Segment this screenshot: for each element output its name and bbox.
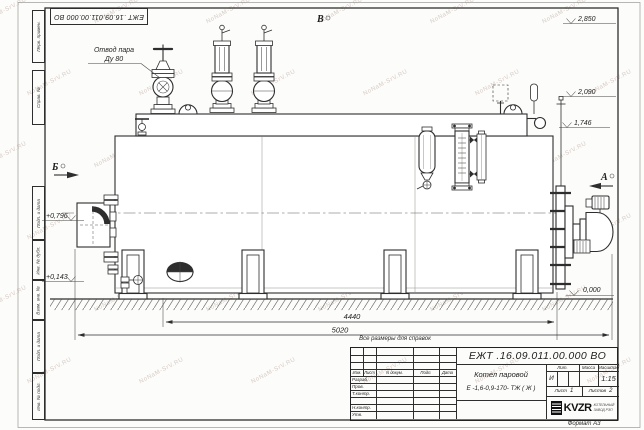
row-utv: Утв.	[352, 411, 376, 418]
svg-text:В: В	[316, 14, 324, 25]
svg-text:2,090: 2,090	[577, 89, 596, 96]
support-leg	[239, 250, 267, 299]
support-leg	[119, 250, 147, 299]
product-name: Котел паровой	[456, 366, 546, 382]
elevation-0143: +0,143	[42, 274, 84, 282]
view-label-a: А	[589, 172, 614, 189]
steam-outlet-callout: Отвод пара Ду 80	[88, 46, 160, 78]
frame-column-inv-podl: Инв. № подл.	[32, 373, 45, 420]
steam-outlet-valve	[151, 45, 175, 114]
support-leg	[513, 250, 541, 299]
frame-column-podp-data-2: Подп. и дата	[32, 320, 45, 373]
kvzr-logo-subtext: КОТЕЛЬНЫЙ ЗАВОД РЭП	[594, 403, 615, 411]
dim-4440: 4440	[344, 312, 362, 321]
col-header-izm: Изм.	[351, 369, 363, 376]
sheet-value: 1	[570, 388, 573, 394]
sheets-cell: Листов 2	[582, 386, 619, 396]
kvzr-logo-text: KVZR	[564, 402, 592, 414]
pipe-curl	[527, 118, 546, 129]
lifting-lug	[504, 105, 522, 114]
scale-value: 1:15	[598, 371, 619, 386]
sheets-value: 2	[609, 388, 612, 394]
ground-line	[50, 299, 613, 310]
svg-text:Б: Б	[51, 162, 59, 173]
frame-column-podp-data-1: Подп. и дата	[32, 186, 45, 240]
drawing-sheet: NoNaM-SrV.RUNoNaM-SrV.RUNoNaM-SrV.RUNoNa…	[0, 0, 644, 430]
frame-column-perv-primen: Перв. примен.	[32, 10, 45, 63]
title-block: ЕЖТ .16.09.011.00.000 ВО Котел паровой Е…	[350, 347, 618, 421]
title-designation: ЕЖТ .16.09.011.00.000 ВО	[456, 348, 619, 364]
reference-note: Все размеры для справок	[352, 336, 438, 342]
rotated-designation-stamp: ЕЖТ .16.09.011.00.000 ВО	[50, 8, 148, 25]
svg-text:А: А	[600, 172, 608, 183]
elevation-2850: 2,850	[563, 16, 616, 24]
product-model: Е -1,6-0,9-170- ТЖ ( Ж )	[456, 381, 546, 395]
col-header-data: Дата	[439, 369, 456, 376]
kvzr-logo-mark	[551, 401, 562, 415]
sheet-cell: Лист 1	[546, 386, 582, 396]
lit-value: И	[546, 371, 557, 386]
svg-text:1,746: 1,746	[574, 120, 592, 127]
lit-header: Лит.	[546, 364, 579, 371]
svg-text:+0,143: +0,143	[46, 274, 68, 281]
svg-text:2,850: 2,850	[577, 16, 596, 23]
support-leg	[381, 250, 409, 299]
logo-cell: KVZR КОТЕЛЬНЫЙ ЗАВОД РЭП	[546, 396, 619, 419]
lifting-lug	[179, 105, 197, 114]
col-header-ndokum: N докум.	[376, 369, 413, 376]
frame-column-vzam-inv: Взам. инв. №	[32, 280, 45, 320]
svg-text:+0,796: +0,796	[46, 213, 68, 220]
mass-header: Масса	[579, 364, 598, 371]
vent-pipe	[557, 97, 566, 187]
safety-valve	[210, 25, 234, 112]
rear-burner-unit	[565, 196, 613, 258]
capsule-sensor	[531, 84, 538, 114]
elevation-0000: 0,000	[566, 287, 614, 296]
dim-5020: 5020	[332, 326, 350, 335]
row-nkontr: Н.контр.	[352, 404, 376, 411]
col-header-podp: Подп.	[413, 369, 439, 376]
view-label-b: Б	[51, 162, 79, 178]
elevation-2090: 2,090	[563, 89, 616, 97]
steam-callout-line2: Ду 80	[104, 56, 123, 63]
row-prov: Пров.	[352, 383, 376, 390]
burner-elbow-box	[77, 203, 116, 247]
col-header-list: Лист	[363, 369, 376, 376]
elevation-1746: 1,746	[559, 120, 610, 128]
rotated-designation-text: ЕЖТ .16.09.011.00.000 ВО	[54, 13, 144, 20]
row-razrab: Разраб.	[352, 376, 376, 383]
scale-header: Масштаб	[598, 364, 619, 371]
view-label-v: В	[316, 14, 330, 25]
frame-column-inv-dubl: Инв. № дубл.	[32, 240, 45, 280]
format-label: Формат А3	[546, 421, 622, 427]
steam-callout-line1: Отвод пара	[94, 46, 134, 54]
svg-text:0,000: 0,000	[583, 287, 601, 294]
row-tkontr: Т.контр.	[352, 390, 376, 397]
safety-valve	[252, 25, 276, 112]
frame-column-sprav-no: Справ. №	[32, 70, 45, 125]
